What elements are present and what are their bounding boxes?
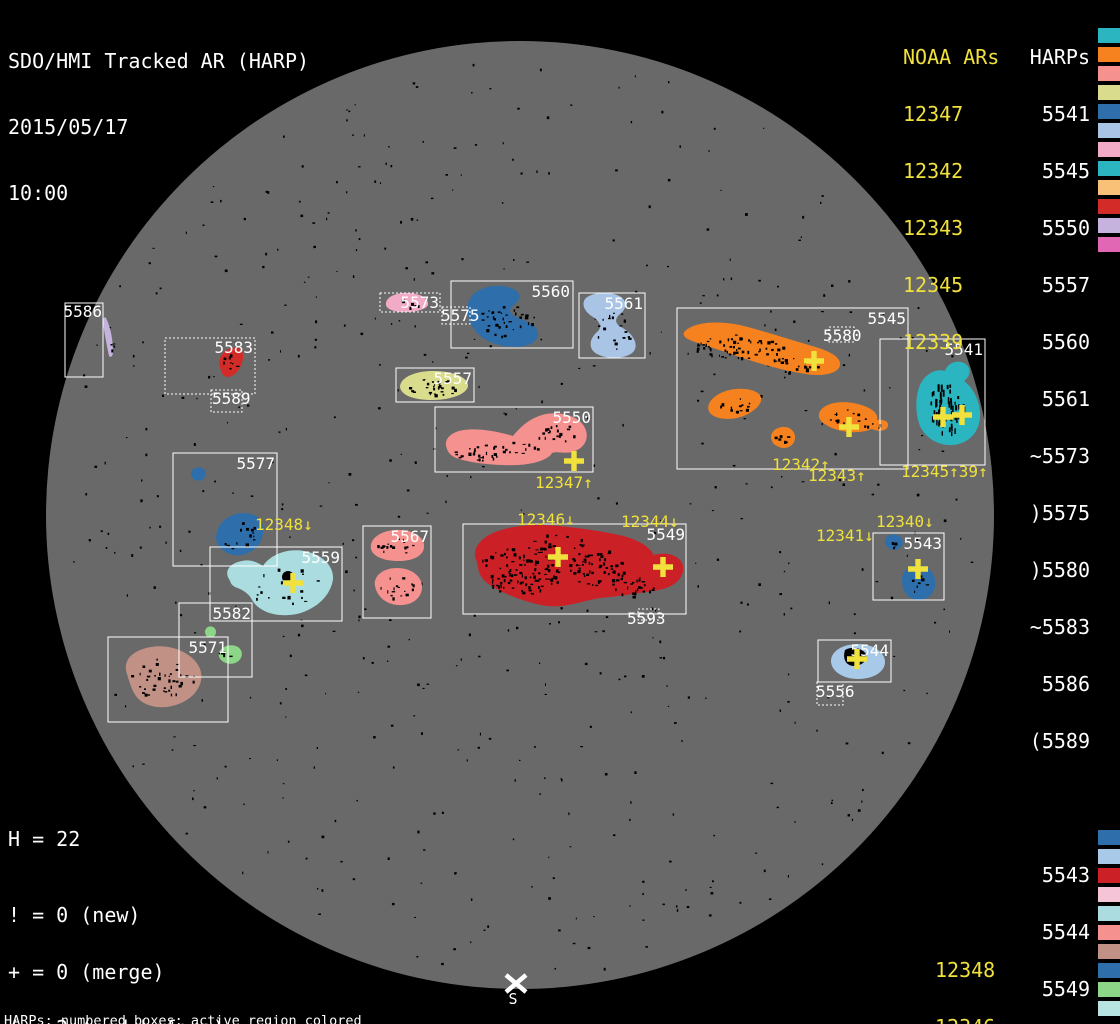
harp-5586-box-label: 5586 [63,302,102,321]
south-label: S [508,990,517,1008]
harp-5561-box-label: 5561 [604,294,643,313]
legend-item-new: ! = 0 (new) [8,906,237,925]
harp-5567-box-label: 5567 [390,527,429,546]
harp-5575-swatch [1098,161,1120,176]
harps-header: HARPs [960,48,1090,67]
harp-5586-swatch [1098,218,1120,233]
harp-5573-swatch [1098,142,1120,157]
harp-item: )5580 [960,561,1090,580]
harp-5543-box-label: 5543 [903,534,942,553]
harp-item: 5541 [960,105,1090,124]
time-label: 10:00 [8,182,309,204]
harp-5571-swatch [1098,944,1120,959]
harp-item: (5589 [960,732,1090,751]
noaa-ar-item: 12346 [935,1018,995,1024]
harp-5560-swatch [1098,104,1120,119]
harp-item: 5557 [960,276,1090,295]
harp-item: )5575 [960,504,1090,523]
harp-figure: 5586 5583 5589 5573 5575 5560 5561 5557 … [0,0,1120,1024]
harp-5577-box-label: 5577 [236,454,275,473]
harp-item: 5560 [960,333,1090,352]
harp-5561-swatch [1098,123,1120,138]
harp-item: 5550 [960,219,1090,238]
harp-5583-box-label: 5583 [214,338,253,357]
noaa-12346-label: 12346↓ [517,510,575,529]
harp-5543-swatch [1098,830,1120,845]
harp-5580-box-label: 5580 [823,326,862,345]
harp-5573-box-label: 5573 [400,293,439,312]
harp-5545-box-label: 5545 [867,309,906,328]
noaa-12344-label: 12344↓ [621,512,679,531]
harp-item: 5586 [960,675,1090,694]
harp-5580-swatch [1098,180,1120,195]
noaa-12348-label: 12348↓ [255,515,313,534]
footnote-harps: HARPs: numbered boxes; active region col… [4,1015,475,1024]
harp-5589-box-label: 5589 [212,389,251,408]
noaa-12341-label: 12341↓ [816,526,874,545]
harp-5577-region-a [191,467,206,480]
harp-item: 5545 [960,162,1090,181]
harp-5582-region-a [205,626,216,637]
app-title: SDO/HMI Tracked AR (HARP) [8,50,309,72]
harp-5593-box-label: 5593 [627,609,666,628]
harp-5559-swatch [1098,906,1120,921]
harp-5541-swatch [1098,28,1120,43]
harp-item: 5561 [960,390,1090,409]
harp-5556-box-label: 5556 [816,682,855,701]
harp-5582-swatch [1098,982,1120,997]
harp-5575-box-label: 5575 [441,306,480,325]
noaa-ar-item: 12348 [935,961,995,980]
harp-5593-swatch [1098,1001,1120,1016]
legend-item-merge: + = 0 (merge) [8,963,237,982]
footnotes: HARPs: numbered boxes; active region col… [4,991,475,1024]
noaa-12340-label: 12340↓ [876,512,934,531]
harp-5560-box-label: 5560 [531,282,570,301]
harp-5567-swatch [1098,925,1120,940]
harp-5582-box-label: 5582 [212,604,251,623]
harp-item: ~5573 [960,447,1090,466]
harp-5589-swatch [1098,237,1120,252]
harp-5545-swatch [1098,47,1120,62]
harps-column-top: HARPs 5541 5545 5550 5557 5560 5561 ~557… [960,10,1090,789]
harp-5550-swatch [1098,66,1120,81]
noaa-12347-label: 12347↑ [535,473,593,492]
harp-count: H = 22 [8,830,80,849]
harp-item: ~5583 [960,618,1090,637]
harp-5557-swatch [1098,85,1120,100]
harp-5559-box-label: 5559 [301,548,340,567]
noaa-ars-column-bottom: 12348 12346 12344 12341 12340 [935,923,995,1024]
date-label: 2015/05/17 [8,116,309,138]
harp-5571-box-label: 5571 [188,638,227,657]
harp-item: 5543 [960,866,1090,885]
harp-5583-swatch [1098,199,1120,214]
noaa-12343-label: 12343↑ [808,466,866,485]
harp-5557-box-label: 5557 [433,369,472,388]
harp-5577-swatch [1098,963,1120,978]
title-block: SDO/HMI Tracked AR (HARP) 2015/05/17 10:… [8,6,309,248]
harp-5550-box-label: 5550 [552,408,591,427]
harp-5549-swatch [1098,868,1120,883]
harp-5544-swatch [1098,849,1120,864]
harp-5556-swatch [1098,887,1120,902]
